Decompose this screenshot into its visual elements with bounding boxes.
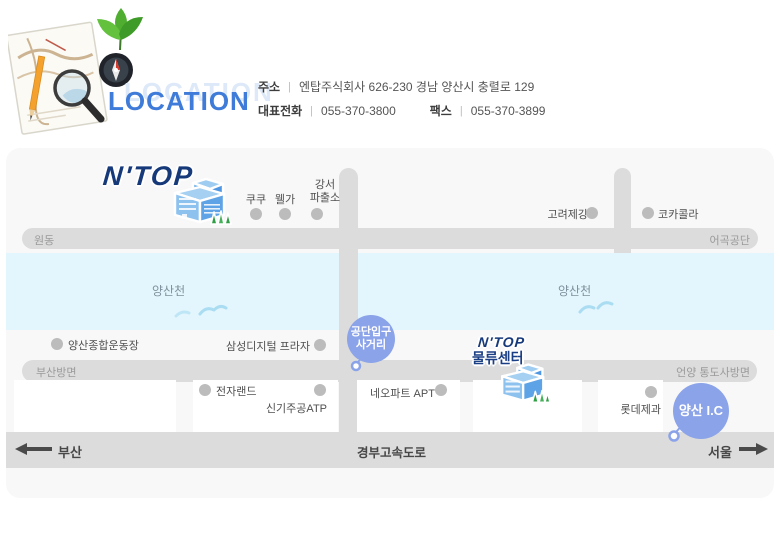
poi-lotte-confectionery: 롯데제과: [603, 401, 661, 417]
poi-dot: [642, 207, 654, 219]
map-illustration-graphic: [8, 4, 148, 140]
poi-dot: [314, 384, 326, 396]
map-illustration-icon: [8, 4, 148, 140]
road-label-wondong: 원동: [34, 232, 54, 248]
arrow-left-icon: [14, 442, 52, 456]
bird-icon: [174, 298, 228, 318]
poi-dot: [311, 208, 323, 220]
poi-dot: [199, 384, 211, 396]
logistics-building-icon: [498, 362, 550, 404]
poi-dot: [435, 384, 447, 396]
poi-singi-jugong-atp: 신기주공ATP: [247, 400, 327, 416]
city-block: [14, 380, 176, 432]
bird-icon: [572, 294, 626, 314]
poi-dot: [645, 386, 657, 398]
river-name-left: 양산천: [152, 282, 185, 299]
leaf-icon: [97, 8, 143, 50]
junction-pin-icon: [349, 348, 371, 372]
page-title-text: LOCATION: [108, 86, 250, 116]
phone-value: 055-370-3800: [321, 104, 396, 118]
poi-coca-cola: 코카콜라: [658, 206, 698, 222]
poi-dot: [279, 208, 291, 220]
poi-dot: [314, 339, 326, 351]
poi-electro-land: 전자랜드: [216, 383, 256, 399]
expressway-city-seoul: 서울: [708, 442, 732, 461]
poi-dot: [51, 338, 63, 350]
fax-label: 팩스: [430, 102, 452, 119]
address-value: 엔탑주식회사 626-230 경남 양산시 충렬로 129: [299, 78, 534, 95]
separator: |: [460, 105, 463, 117]
road-wondong-eogok: [22, 228, 758, 249]
phone-fax-row: 대표전화 | 055-370-3800 팩스 | 055-370-3899: [258, 102, 545, 119]
road-label-busan-direction: 부산방면: [36, 364, 76, 380]
poi-yangsan-stadium: 양산종합운동장: [68, 337, 139, 353]
contact-info: 주소 | 엔탑주식회사 626-230 경남 양산시 충렬로 129 대표전화 …: [258, 78, 545, 126]
page-title: LOCATION LOCATION: [108, 86, 250, 118]
location-map: 양산천 양산천 원동 어곡공단 부산방면 언양 통도사방면 쿠쿠 웰가 강서파출…: [6, 148, 774, 498]
arrow-right-icon: [739, 442, 769, 456]
poi-samsung-digital-plaza: 삼성디지털 프라자: [210, 338, 310, 354]
poi-neo-apt: 네오파트 APT: [370, 385, 435, 401]
separator: |: [288, 81, 291, 93]
separator: |: [310, 105, 313, 117]
road-label-eogok: 어곡공단: [686, 232, 750, 248]
expressway-name: 경부고속도로: [357, 442, 426, 461]
headquarters-building-icon: [170, 176, 232, 226]
address-row: 주소 | 엔탑주식회사 626-230 경남 양산시 충렬로 129: [258, 78, 545, 95]
phone-label: 대표전화: [258, 102, 302, 119]
poi-dot: [586, 207, 598, 219]
road-label-eonyang: 언양 통도사방면: [646, 364, 750, 380]
junction-pin-icon: [666, 416, 690, 442]
poi-dot: [250, 208, 262, 220]
road-vertical-main: [339, 168, 358, 432]
expressway-city-busan: 부산: [58, 442, 82, 461]
address-label: 주소: [258, 78, 280, 95]
fax-value: 055-370-3899: [471, 104, 546, 118]
poi-korea-steel: 고려제강: [518, 206, 588, 222]
poi-gangseo-police: 강서파출소: [301, 179, 349, 205]
